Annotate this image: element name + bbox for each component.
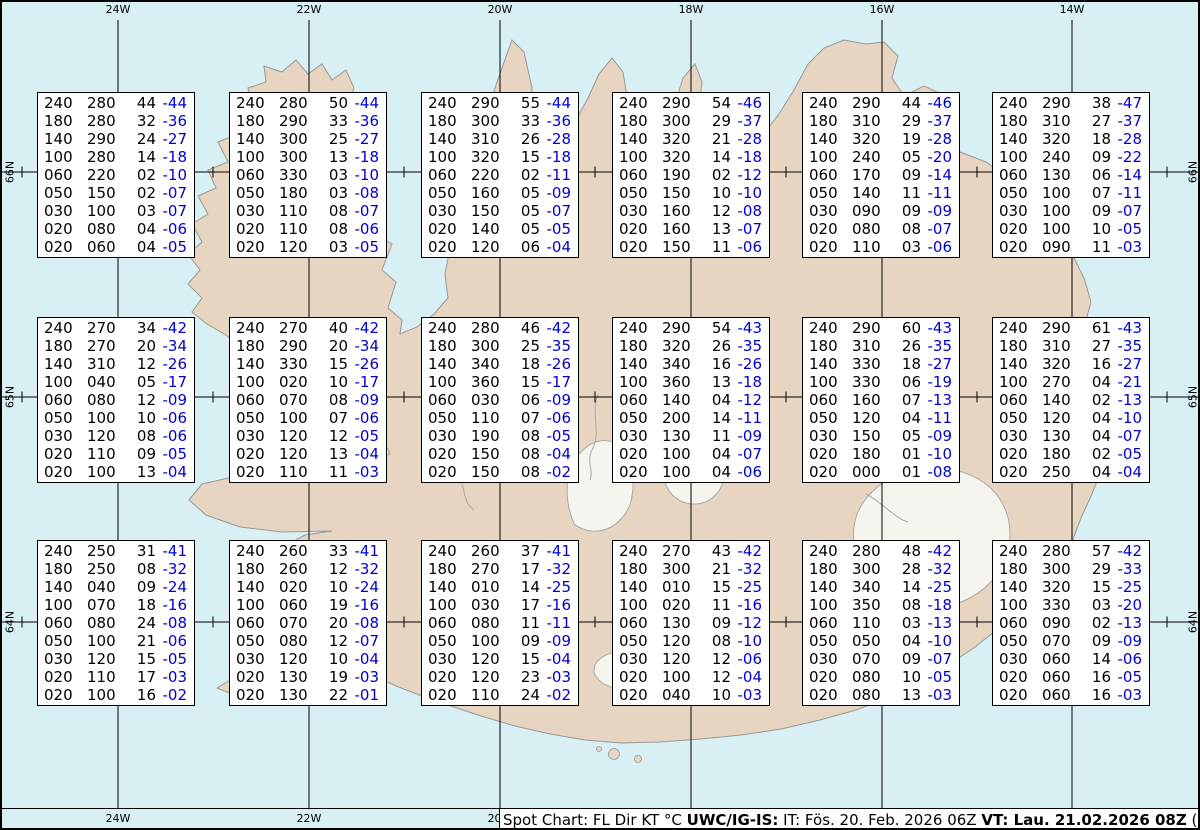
kt-value: 12 <box>326 560 348 578</box>
temp-value: -06 <box>921 238 952 256</box>
fl-value: 030 <box>428 202 458 220</box>
kt-value: 16 <box>1089 355 1111 373</box>
spot-row: 06009002-13 <box>999 614 1142 632</box>
temp-value: -16 <box>540 596 571 614</box>
temp-value: -33 <box>1111 560 1142 578</box>
kt-value: 03 <box>326 166 348 184</box>
fl-value: 050 <box>619 632 649 650</box>
dir-value: 120 <box>87 427 117 445</box>
kt-value: 09 <box>1089 148 1111 166</box>
spot-table-65N-22W: 24027040-4218029020-3414033015-261000201… <box>229 317 387 483</box>
dir-value: 070 <box>279 614 309 632</box>
kt-value: 09 <box>134 445 156 463</box>
fl-value: 060 <box>619 391 649 409</box>
kt-value: 18 <box>1089 130 1111 148</box>
fl-value: 020 <box>999 445 1029 463</box>
kt-value: 10 <box>709 686 731 704</box>
temp-value: -10 <box>921 445 952 463</box>
fl-value: 140 <box>809 355 839 373</box>
temp-value: -36 <box>348 112 379 130</box>
kt-value: 17 <box>518 596 540 614</box>
fl-value: 180 <box>44 337 74 355</box>
spot-row: 02008008-07 <box>809 220 952 238</box>
dir-value: 120 <box>279 427 309 445</box>
spot-row: 14032016-27 <box>999 355 1142 373</box>
spot-row: 14031012-26 <box>44 355 187 373</box>
spot-row: 05010021-06 <box>44 632 187 650</box>
dir-value: 130 <box>662 427 692 445</box>
spot-row: 14032021-28 <box>619 130 762 148</box>
fl-value: 020 <box>428 463 458 481</box>
kt-value: 38 <box>1089 94 1111 112</box>
spot-row: 06011003-13 <box>809 614 952 632</box>
kt-value: 15 <box>709 578 731 596</box>
footer-segment: (+26 h) <box>1187 811 1200 829</box>
fl-value: 140 <box>44 130 74 148</box>
spot-row: 02006004-05 <box>44 238 187 256</box>
lon-label-top: 24W <box>106 3 131 16</box>
fl-value: 100 <box>619 373 649 391</box>
dir-value: 080 <box>852 668 882 686</box>
spot-row: 06019002-12 <box>619 166 762 184</box>
dir-value: 090 <box>852 202 882 220</box>
kt-value: 06 <box>899 373 921 391</box>
temp-value: -04 <box>348 445 379 463</box>
fl-value: 140 <box>809 130 839 148</box>
fl-value: 030 <box>999 202 1029 220</box>
kt-value: 10 <box>899 668 921 686</box>
spot-row: 18031027-37 <box>999 112 1142 130</box>
kt-value: 20 <box>326 614 348 632</box>
kt-value: 43 <box>709 542 731 560</box>
spot-row: 02010010-05 <box>999 220 1142 238</box>
fl-value: 050 <box>236 632 266 650</box>
temp-value: -06 <box>731 650 762 668</box>
kt-value: 15 <box>326 355 348 373</box>
fl-value: 020 <box>236 445 266 463</box>
temp-value: -08 <box>348 184 379 202</box>
fl-value: 180 <box>619 337 649 355</box>
fl-value: 140 <box>428 130 458 148</box>
dir-value: 010 <box>662 578 692 596</box>
temp-value: -07 <box>731 445 762 463</box>
fl-value: 020 <box>809 686 839 704</box>
spot-row: 03011008-07 <box>236 202 379 220</box>
temp-value: -04 <box>1111 463 1142 481</box>
kt-value: 04 <box>1089 427 1111 445</box>
spot-row: 03007009-07 <box>809 650 952 668</box>
kt-value: 33 <box>326 112 348 130</box>
temp-value: -20 <box>1111 596 1142 614</box>
temp-value: -11 <box>540 166 571 184</box>
kt-value: 14 <box>709 148 731 166</box>
dir-value: 310 <box>852 337 882 355</box>
spot-row: 06014002-13 <box>999 391 1142 409</box>
dir-value: 360 <box>471 373 501 391</box>
dir-value: 090 <box>1042 614 1072 632</box>
fl-value: 050 <box>428 184 458 202</box>
dir-value: 320 <box>1042 130 1072 148</box>
dir-value: 100 <box>87 202 117 220</box>
kt-value: 29 <box>709 112 731 130</box>
fl-value: 050 <box>619 409 649 427</box>
spot-row: 06013006-14 <box>999 166 1142 184</box>
spot-row: 18030028-32 <box>809 560 952 578</box>
spot-row: 24027043-42 <box>619 542 762 560</box>
kt-value: 09 <box>899 650 921 668</box>
fl-value: 060 <box>809 614 839 632</box>
dir-value: 220 <box>471 166 501 184</box>
fl-value: 020 <box>44 668 74 686</box>
dir-value: 310 <box>1042 337 1072 355</box>
spot-row: 02011003-06 <box>809 238 952 256</box>
kt-value: 01 <box>899 445 921 463</box>
fl-value: 020 <box>428 668 458 686</box>
kt-value: 05 <box>134 373 156 391</box>
fl-value: 020 <box>619 686 649 704</box>
spot-row: 18029020-34 <box>236 337 379 355</box>
lat-label-right: 64N <box>1188 611 1199 633</box>
temp-value: -42 <box>921 542 952 560</box>
kt-value: 12 <box>134 391 156 409</box>
dir-value: 290 <box>471 94 501 112</box>
dir-value: 250 <box>1042 463 1072 481</box>
dir-value: 100 <box>471 632 501 650</box>
spot-row: 03010009-07 <box>999 202 1142 220</box>
spot-row: 24027034-42 <box>44 319 187 337</box>
spot-row: 02010004-07 <box>619 445 762 463</box>
spot-table-66N-24W: 24028044-4418028032-3614029024-271002801… <box>37 92 195 258</box>
kt-value: 03 <box>1089 596 1111 614</box>
dir-value: 330 <box>852 373 882 391</box>
temp-value: -07 <box>348 632 379 650</box>
kt-value: 06 <box>1089 166 1111 184</box>
spot-row: 18030021-32 <box>619 560 762 578</box>
dir-value: 300 <box>1042 560 1072 578</box>
dir-value: 300 <box>279 148 309 166</box>
temp-value: -11 <box>1111 184 1142 202</box>
temp-value: -27 <box>156 130 187 148</box>
temp-value: -35 <box>921 337 952 355</box>
fl-value: 060 <box>999 391 1029 409</box>
spot-row: 03015005-09 <box>809 427 952 445</box>
temp-value: -05 <box>1111 445 1142 463</box>
kt-value: 23 <box>518 668 540 686</box>
spot-row: 10033006-19 <box>809 373 952 391</box>
temp-value: -42 <box>1111 542 1142 560</box>
temp-value: -06 <box>156 220 187 238</box>
fl-value: 240 <box>809 319 839 337</box>
temp-value: -35 <box>731 337 762 355</box>
spot-row: 03009009-09 <box>809 202 952 220</box>
dir-value: 280 <box>279 94 309 112</box>
spot-row: 10002010-17 <box>236 373 379 391</box>
kt-value: 08 <box>899 596 921 614</box>
spot-row: 05008012-07 <box>236 632 379 650</box>
dir-value: 080 <box>87 391 117 409</box>
temp-value: -11 <box>921 409 952 427</box>
dir-value: 320 <box>471 148 501 166</box>
spot-row: 02012006-04 <box>428 238 571 256</box>
temp-value: -27 <box>348 130 379 148</box>
spot-row: 14030025-27 <box>236 130 379 148</box>
fl-value: 100 <box>999 373 1029 391</box>
dir-value: 110 <box>852 614 882 632</box>
temp-value: -10 <box>156 166 187 184</box>
temp-value: -32 <box>921 560 952 578</box>
kt-value: 16 <box>134 686 156 704</box>
fl-value: 030 <box>999 427 1029 445</box>
spot-row: 14033018-27 <box>809 355 952 373</box>
spot-row: 02006016-03 <box>999 686 1142 704</box>
spot-row: 02011011-03 <box>236 463 379 481</box>
kt-value: 54 <box>709 319 731 337</box>
kt-value: 16 <box>1089 686 1111 704</box>
temp-value: -43 <box>731 319 762 337</box>
temp-value: -02 <box>156 686 187 704</box>
spot-row: 18032026-35 <box>619 337 762 355</box>
dir-value: 310 <box>852 112 882 130</box>
temp-value: -41 <box>348 542 379 560</box>
dir-value: 080 <box>852 220 882 238</box>
fl-value: 020 <box>619 238 649 256</box>
kt-value: 05 <box>518 220 540 238</box>
fl-value: 030 <box>44 202 74 220</box>
kt-value: 09 <box>899 166 921 184</box>
kt-value: 02 <box>709 166 731 184</box>
dir-value: 200 <box>662 409 692 427</box>
lon-label-top: 16W <box>870 3 895 16</box>
temp-value: -37 <box>921 112 952 130</box>
kt-value: 09 <box>709 614 731 632</box>
kt-value: 12 <box>709 668 731 686</box>
spot-row: 10032015-18 <box>428 148 571 166</box>
spot-table-64N-18W: 24027043-4218030021-3214001015-251000201… <box>612 540 770 706</box>
spot-table-65N-18W: 24029054-4318032026-3514034016-261003601… <box>612 317 770 483</box>
dir-value: 100 <box>87 409 117 427</box>
spot-row: 02018001-10 <box>809 445 952 463</box>
dir-value: 080 <box>279 632 309 650</box>
fl-value: 180 <box>809 112 839 130</box>
temp-value: -08 <box>731 202 762 220</box>
spot-row: 24026033-41 <box>236 542 379 560</box>
dir-value: 110 <box>852 238 882 256</box>
dir-value: 340 <box>471 355 501 373</box>
dir-value: 150 <box>662 238 692 256</box>
kt-value: 10 <box>709 184 731 202</box>
spot-row: 10033003-20 <box>999 596 1142 614</box>
temp-value: -10 <box>731 184 762 202</box>
spot-row: 02012003-05 <box>236 238 379 256</box>
spot-row: 24025031-41 <box>44 542 187 560</box>
spot-row: 10002011-16 <box>619 596 762 614</box>
dir-value: 120 <box>662 632 692 650</box>
spot-row: 02011017-03 <box>44 668 187 686</box>
temp-value: -14 <box>1111 166 1142 184</box>
kt-value: 55 <box>518 94 540 112</box>
spot-row: 06022002-11 <box>428 166 571 184</box>
kt-value: 14 <box>899 578 921 596</box>
kt-value: 04 <box>134 238 156 256</box>
kt-value: 10 <box>326 373 348 391</box>
spot-table-66N-14W: 24029038-4718031027-3714032018-281002400… <box>992 92 1150 258</box>
fl-value: 050 <box>236 409 266 427</box>
spot-row: 05015002-07 <box>44 184 187 202</box>
dir-value: 270 <box>87 319 117 337</box>
spot-row: 10036013-18 <box>619 373 762 391</box>
kt-value: 08 <box>518 427 540 445</box>
fl-value: 020 <box>809 445 839 463</box>
temp-value: -09 <box>731 427 762 445</box>
temp-value: -08 <box>921 463 952 481</box>
spot-row: 10027004-21 <box>999 373 1142 391</box>
dir-value: 100 <box>1042 184 1072 202</box>
spot-row: 02015008-04 <box>428 445 571 463</box>
spot-row: 02009011-03 <box>999 238 1142 256</box>
dir-value: 290 <box>662 94 692 112</box>
kt-value: 21 <box>134 632 156 650</box>
fl-value: 020 <box>44 445 74 463</box>
temp-value: -07 <box>921 220 952 238</box>
spot-row: 10032014-18 <box>619 148 762 166</box>
dir-value: 090 <box>1042 238 1072 256</box>
kt-value: 44 <box>134 94 156 112</box>
fl-value: 180 <box>999 337 1029 355</box>
fl-value: 240 <box>619 542 649 560</box>
dir-value: 150 <box>471 202 501 220</box>
fl-value: 180 <box>809 337 839 355</box>
dir-value: 040 <box>87 578 117 596</box>
kt-value: 04 <box>899 632 921 650</box>
temp-value: -36 <box>156 112 187 130</box>
spot-row: 10036015-17 <box>428 373 571 391</box>
dir-value: 300 <box>662 112 692 130</box>
fl-value: 100 <box>44 148 74 166</box>
kt-value: 57 <box>1089 542 1111 560</box>
spot-row: 02013019-03 <box>236 668 379 686</box>
temp-value: -32 <box>348 560 379 578</box>
kt-value: 33 <box>326 542 348 560</box>
spot-row: 06008011-11 <box>428 614 571 632</box>
spot-row: 02010016-02 <box>44 686 187 704</box>
temp-value: -09 <box>1111 632 1142 650</box>
dir-value: 180 <box>279 184 309 202</box>
dir-value: 220 <box>87 166 117 184</box>
dir-value: 110 <box>87 445 117 463</box>
spot-row: 05020014-11 <box>619 409 762 427</box>
fl-value: 030 <box>44 650 74 668</box>
dir-value: 100 <box>662 668 692 686</box>
dir-value: 290 <box>87 130 117 148</box>
kt-value: 04 <box>1089 373 1111 391</box>
spot-row: 06003006-09 <box>428 391 571 409</box>
spot-row: 24028057-42 <box>999 542 1142 560</box>
spot-row: 03013004-07 <box>999 427 1142 445</box>
fl-value: 100 <box>236 373 266 391</box>
fl-value: 020 <box>809 238 839 256</box>
spot-row: 02011008-06 <box>236 220 379 238</box>
dir-value: 150 <box>852 427 882 445</box>
temp-value: -26 <box>156 355 187 373</box>
dir-value: 070 <box>852 650 882 668</box>
dir-value: 290 <box>662 319 692 337</box>
temp-value: -05 <box>348 238 379 256</box>
fl-value: 240 <box>428 319 458 337</box>
spot-row: 10028014-18 <box>44 148 187 166</box>
kt-value: 26 <box>709 337 731 355</box>
fl-value: 100 <box>999 148 1029 166</box>
kt-value: 25 <box>518 337 540 355</box>
kt-value: 05 <box>899 148 921 166</box>
temp-value: -04 <box>540 650 571 668</box>
temp-value: -41 <box>156 542 187 560</box>
temp-value: -43 <box>921 319 952 337</box>
dir-value: 320 <box>1042 355 1072 373</box>
fl-value: 100 <box>236 596 266 614</box>
spot-row: 02006016-05 <box>999 668 1142 686</box>
dir-value: 070 <box>87 596 117 614</box>
temp-value: -16 <box>348 596 379 614</box>
fl-value: 060 <box>44 166 74 184</box>
kt-value: 04 <box>709 463 731 481</box>
fl-value: 050 <box>999 409 1029 427</box>
temp-value: -05 <box>156 650 187 668</box>
dir-value: 320 <box>852 130 882 148</box>
dir-value: 120 <box>279 650 309 668</box>
temp-value: -07 <box>921 650 952 668</box>
temp-value: -17 <box>348 373 379 391</box>
dir-value: 150 <box>87 184 117 202</box>
dir-value: 300 <box>852 560 882 578</box>
lat-label-right: 65N <box>1188 386 1199 408</box>
fl-value: 020 <box>619 445 649 463</box>
spot-row: 18031026-35 <box>809 337 952 355</box>
spot-row: 05015010-10 <box>619 184 762 202</box>
spot-table-66N-16W: 24029044-4618031029-3714032019-281002400… <box>802 92 960 258</box>
fl-value: 180 <box>44 560 74 578</box>
kt-value: 02 <box>1089 614 1111 632</box>
spot-row: 06008012-09 <box>44 391 187 409</box>
dir-value: 270 <box>1042 373 1072 391</box>
kt-value: 09 <box>518 632 540 650</box>
fl-value: 030 <box>809 427 839 445</box>
spot-row: 14004009-24 <box>44 578 187 596</box>
fl-value: 240 <box>44 319 74 337</box>
temp-value: -06 <box>156 632 187 650</box>
temp-value: -10 <box>731 632 762 650</box>
fl-value: 030 <box>428 650 458 668</box>
dir-value: 360 <box>662 373 692 391</box>
spot-row: 24028044-44 <box>44 94 187 112</box>
fl-value: 100 <box>619 148 649 166</box>
temp-value: -05 <box>156 238 187 256</box>
lon-label-bottom: 24W <box>106 812 131 825</box>
temp-value: -06 <box>731 463 762 481</box>
spot-row: 03012015-05 <box>44 650 187 668</box>
kt-value: 20 <box>326 337 348 355</box>
spot-row: 18030029-37 <box>619 112 762 130</box>
kt-value: 48 <box>899 542 921 560</box>
kt-value: 24 <box>518 686 540 704</box>
spot-row: 06007020-08 <box>236 614 379 632</box>
dir-value: 110 <box>471 686 501 704</box>
spot-table-65N-14W: 24029061-4318031027-3514032016-271002700… <box>992 317 1150 483</box>
dir-value: 310 <box>1042 112 1072 130</box>
dir-value: 290 <box>279 112 309 130</box>
footer-bold-segment: UWC/IG-IS: <box>687 811 779 829</box>
temp-value: -13 <box>1111 614 1142 632</box>
kt-value: 08 <box>134 560 156 578</box>
